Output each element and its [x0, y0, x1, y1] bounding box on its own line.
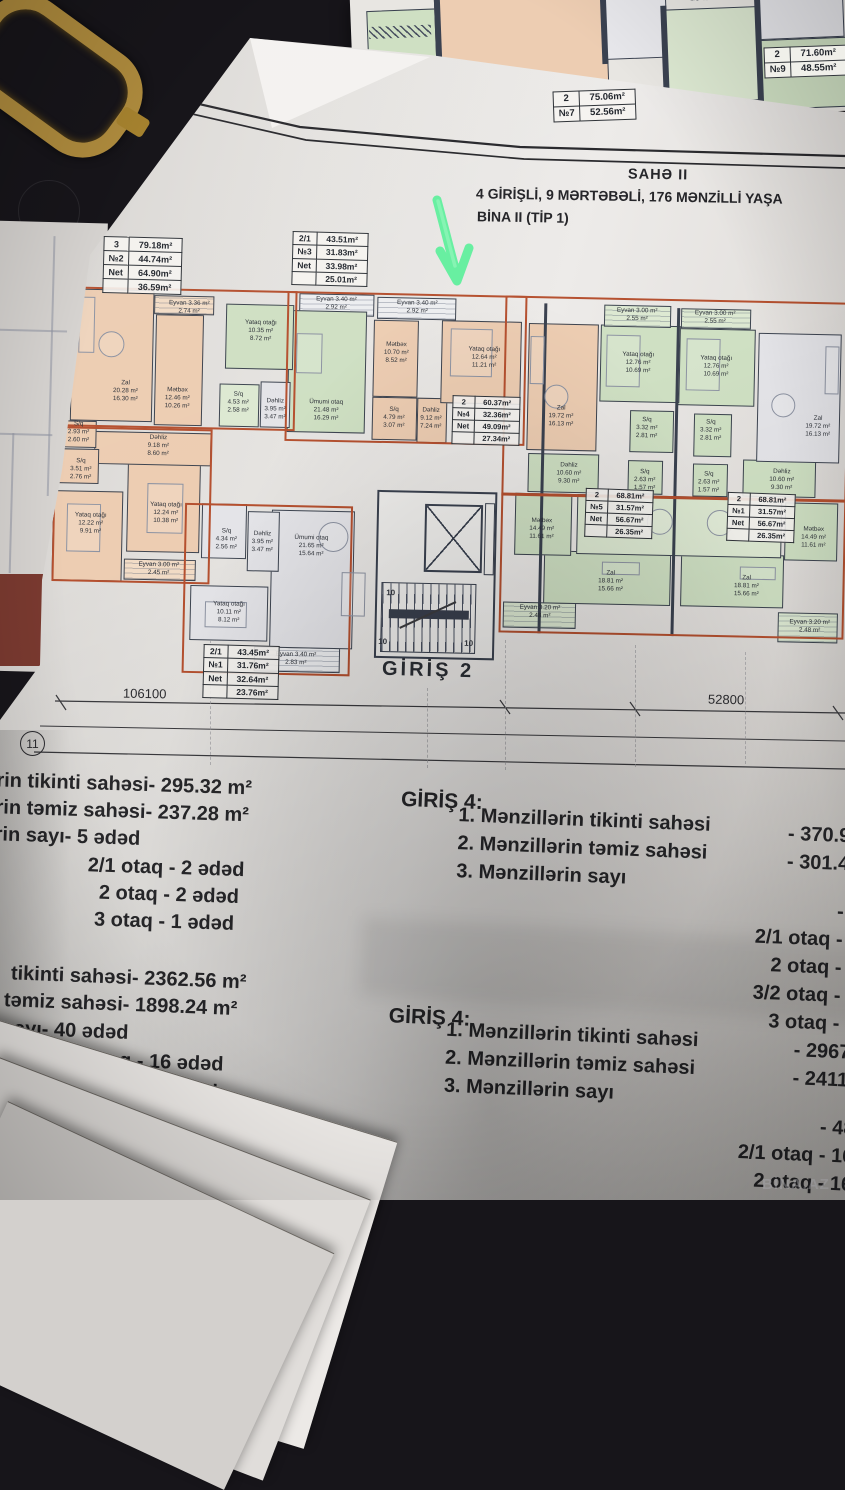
area-table-value: 79.18m² [129, 237, 183, 252]
stat-label: tikinti sahəsi [11, 962, 133, 989]
fragment-area-label: S/O 4.88 m² [690, 0, 720, 3]
area-table-key: №1 [204, 658, 228, 672]
dimension-value-left: 106100 [123, 686, 167, 702]
fragment-room [757, 0, 844, 40]
area-table-value: 32.64m² [227, 672, 278, 687]
fragment-room [604, 0, 669, 60]
area-table: 275.06m²№752.56m² [552, 89, 636, 122]
sheet-number-badge: 11 [20, 731, 45, 756]
stat-value: - 2411 [792, 1067, 845, 1091]
area-table-key [585, 524, 607, 537]
area-table-key: Net [727, 516, 749, 529]
area-table-key: 2/1 [293, 232, 317, 246]
stat-value: - 301.4 [787, 851, 845, 875]
stat-value: 2 otaq - 2 ə [770, 954, 845, 980]
area-table-key [727, 528, 749, 541]
stat-value: 2/1 otaq - 2 ə [754, 926, 845, 953]
area-table-value: 33.98m² [316, 259, 367, 274]
area-table: 379.18m²№244.74m²Net64.90m²36.59m² [102, 236, 183, 295]
area-table: 271.60m²№948.55m² [763, 45, 845, 78]
area-table-key: 2 [586, 488, 608, 501]
area-table-value: 43.51m² [317, 232, 368, 247]
area-table-key [292, 271, 316, 285]
stat-label: 2. Mənzillərin təmiz sahəsi [457, 832, 708, 864]
stats-block-entrance3: rin tikinti sahəsi- 295.32 m² rin təmiz … [0, 769, 297, 948]
area-table: 2/143.51m²№331.83m²Net33.98m²25.01m² [291, 231, 368, 287]
area-table-value: 48.55m² [790, 60, 845, 77]
area-table-value: 52.56m² [579, 104, 636, 121]
area-table-value: 25.01m² [315, 272, 366, 287]
stat-value: - 237.28 m² [145, 801, 249, 826]
faint-plan-line [0, 329, 67, 332]
area-table-value: 26.35m² [748, 529, 794, 542]
axis-dashed-line [745, 652, 746, 764]
stat-label: rin təmiz sahəsi [0, 796, 146, 823]
area-table-key: №9 [765, 62, 791, 78]
area-table-key: №2 [104, 251, 129, 266]
area-table: 260.37m²№432.36m²Net49.09m²27.34m² [451, 395, 520, 445]
stat-value: - 1898.24 m² [122, 994, 237, 1020]
stat-value: 3/2 otaq - 1 ə [752, 982, 845, 1009]
dimension-value-right: 52800 [708, 692, 744, 708]
stat-value: - 48 [820, 1116, 845, 1139]
area-table-key: Net [292, 258, 316, 272]
stat-label: təmiz sahəsi [3, 989, 123, 1016]
area-table-key: 2 [728, 492, 750, 505]
axis-dashed-line [427, 688, 428, 768]
area-table-key: 2 [764, 47, 790, 63]
area-table-key: №3 [293, 245, 317, 259]
fragment-hatch-wall [369, 25, 431, 39]
stats-block-entrance4-upper: GİRİŞ 4: 1. Mənzillərin tikinti sahəsi 2… [389, 786, 845, 1034]
stat-label: 3. Mənzillərin sayı [456, 860, 627, 889]
area-table-key [203, 684, 227, 698]
entrance-label: GİRİŞ 2 [382, 658, 475, 683]
stat-label: 2. Mənzillərin təmiz sahəsi [445, 1047, 696, 1079]
axis-dashed-line [635, 645, 636, 767]
faint-plan-line [0, 433, 52, 436]
area-table-key: №1 [728, 504, 750, 517]
area-table-value: 44.74m² [128, 251, 182, 266]
axis-dashed-line [505, 640, 506, 770]
area-table-key: Net [103, 265, 128, 280]
area-table-key [452, 431, 474, 443]
area-table-key: 2 [453, 396, 475, 408]
area-table-value: 64.90m² [128, 265, 182, 280]
area-table-key: 3 [104, 236, 129, 251]
stat-value: - 295.32 m² [148, 774, 252, 799]
stat-value: - 6 ə [837, 901, 845, 925]
area-table-value: 31.83m² [316, 245, 367, 260]
area-table: 2/143.45m²№131.76m²Net32.64m²23.76m² [202, 644, 279, 700]
stat-label: 1. Mənzillərin tikinti sahəsi [446, 1019, 699, 1052]
fragment-room [664, 6, 764, 104]
stat-value: - 370.9 [788, 823, 845, 847]
area-table-key [103, 279, 128, 294]
stat-value: 2/1 otaq - 2 ədəd [87, 854, 244, 881]
area-table-key: Net [203, 671, 227, 685]
stat-value: - 5 ədəd [64, 826, 140, 850]
stat-value: 2 otaq - 2 ədəd [99, 882, 240, 908]
area-table-value: 36.59m² [128, 279, 182, 294]
gold-clasp [0, 0, 161, 176]
faint-plan-line [9, 433, 14, 573]
faint-plan-line [47, 236, 55, 496]
area-table-value: 23.76m² [226, 685, 277, 700]
area-table-value: 27.34m² [473, 432, 519, 445]
table-surface-patch [0, 574, 46, 666]
area-table-key: №4 [453, 408, 475, 420]
area-table-key: Net [585, 512, 607, 525]
area-table-key: 2/1 [204, 645, 228, 659]
area-table-key: 2 [553, 91, 579, 107]
stat-value: - 2362.56 m² [132, 967, 247, 993]
stat-label: rin sayı [0, 823, 65, 847]
stat-value: 2/1 otaq - 16 [737, 1141, 845, 1168]
stat-label: 1. Mənzillərin tikinti sahəsi [458, 804, 711, 836]
area-table: 268.81m²№531.57m²Net56.67m²26.35m² [584, 488, 654, 539]
area-table-key: №7 [554, 106, 580, 122]
area-table-value: 26.35m² [606, 525, 652, 538]
area-table-key: Net [452, 419, 474, 431]
stat-value: - 2967 [793, 1039, 845, 1063]
main-sheet: SAHƏ II 4 GİRİŞLİ, 9 MƏRTƏBƏLİ, 176 MƏNZ… [0, 0, 845, 1200]
area-table-key: №5 [586, 500, 608, 513]
stat-label: 3. Mənzillərin sayı [443, 1075, 614, 1104]
stat-label: rin tikinti sahəsi [0, 769, 149, 796]
watermark: BİNA.AZ [762, 1176, 830, 1193]
area-table-value: 43.45m² [228, 645, 279, 660]
area-table-value: 31.76m² [227, 658, 278, 673]
area-table: 268.81m²№131.57m²Net56.67m²26.35m² [726, 492, 796, 543]
stat-value: 3 otaq - 1 ədəd [94, 908, 235, 934]
stat-value: 3/2 otaq - 8 [746, 1197, 845, 1223]
photo-scene: S/O 4.88 m² SAHƏ II 4 GİRİŞLİ, 9 MƏRTƏBƏ… [0, 0, 845, 1200]
